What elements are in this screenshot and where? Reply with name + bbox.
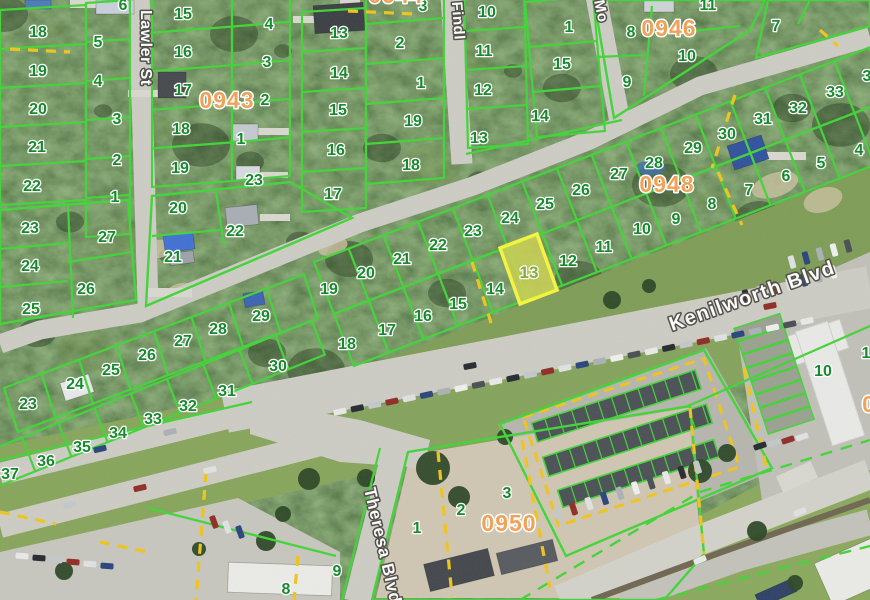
lot-number-label: 22 — [226, 223, 244, 240]
lot-number-label: 20 — [357, 265, 375, 282]
lot-number-label: 15 — [449, 296, 467, 313]
lot-number-label: 17 — [378, 322, 396, 339]
lot-number-label: 8 — [627, 24, 636, 41]
lot-number-label: 22 — [429, 237, 447, 254]
lot-number-label: 25 — [22, 301, 40, 318]
lot-number-label: 1 — [565, 19, 574, 36]
lot-number-label: 36 — [37, 453, 55, 470]
lot-number-label: 19 — [404, 113, 422, 130]
lot-number-label: 32 — [789, 100, 807, 117]
lot-number-label: 3 — [263, 54, 272, 71]
lot-number-label: 3 — [863, 68, 870, 85]
lot-number-label: 22 — [23, 178, 41, 195]
lot-number-label: 6 — [119, 0, 128, 14]
lot-number-label: 11 — [476, 43, 493, 60]
lot-number-label: 16 — [174, 44, 192, 61]
lot-number-label: 30 — [269, 358, 287, 375]
lot-number-label: 26 — [138, 347, 156, 364]
lot-number-label: 27 — [98, 229, 116, 246]
lot-number-label: 20 — [169, 200, 187, 217]
lot-number-label: 34 — [109, 425, 127, 442]
block-number-label: 0943 — [199, 87, 254, 113]
lot-number-label: 12 — [474, 82, 492, 99]
lot-number-label: 23 — [464, 223, 482, 240]
lot-number-label: 18 — [29, 24, 47, 41]
lot-number-label: 35 — [73, 439, 91, 456]
lot-number-label: 13 — [330, 25, 348, 42]
parcel-map[interactable]: 6185194203212221232724262515161718194321… — [0, 0, 870, 600]
lot-number-label: 27 — [174, 333, 192, 350]
street-name-label: Lawler St — [137, 10, 154, 86]
lot-number-label: 31 — [754, 111, 772, 128]
lot-number-label: 21 — [164, 249, 182, 266]
lot-number-label: 2 — [396, 35, 405, 52]
block-number-label: 0948 — [639, 171, 694, 197]
lot-number-label: 14 — [531, 108, 549, 125]
lot-number-label: 24 — [501, 210, 519, 227]
lot-number-label: 7 — [772, 18, 781, 35]
lot-number-label: 28 — [645, 155, 663, 172]
lot-number-label: 2 — [261, 92, 270, 109]
lot-number-label: 17 — [174, 82, 192, 99]
block-number-label: 0 — [862, 391, 870, 417]
lot-number-label: 8 — [282, 581, 291, 598]
lot-number-label: 23 — [245, 172, 263, 189]
lot-number-label: 32 — [179, 398, 197, 415]
selected-lot-number-label: 13 — [520, 263, 539, 282]
lot-number-label: 17 — [324, 186, 342, 203]
lot-number-label: 11 — [700, 0, 717, 14]
lot-number-label: 24 — [66, 376, 84, 393]
lot-number-label: 16 — [327, 142, 345, 159]
lot-number-label: 10 — [633, 221, 651, 238]
lot-number-label: 26 — [77, 281, 95, 298]
lot-number-label: 10 — [678, 48, 696, 65]
lot-number-label: 19 — [320, 281, 338, 298]
lot-number-label: 25 — [536, 196, 554, 213]
lot-number-label: 1 — [413, 520, 422, 537]
lot-number-label: 12 — [559, 253, 577, 270]
lot-number-label: 4 — [94, 73, 103, 90]
lot-number-label: 33 — [826, 84, 844, 101]
lot-number-label: 2 — [113, 152, 122, 169]
lot-number-label: 10 — [478, 4, 496, 21]
lot-number-label: 14 — [486, 281, 504, 298]
lot-number-label: 10 — [814, 363, 832, 380]
lot-number-label: 19 — [29, 63, 47, 80]
lot-number-label: 15 — [553, 56, 571, 73]
lot-number-label: 24 — [21, 258, 39, 275]
lot-number-label: 18 — [172, 121, 190, 138]
lot-number-label: 1 — [237, 131, 246, 148]
lot-number-label: 2 — [457, 502, 466, 519]
lot-number-label: 19 — [171, 160, 189, 177]
lot-number-label: 18 — [402, 157, 420, 174]
lot-number-label: 4 — [855, 142, 864, 159]
lot-number-label: 5 — [94, 34, 103, 51]
lot-number-label: 9 — [333, 563, 342, 580]
lot-number-label: 11 — [596, 239, 613, 256]
lot-number-label: 21 — [28, 139, 46, 156]
lot-number-label: 31 — [218, 383, 236, 400]
lot-number-label: 13 — [470, 130, 488, 147]
lot-number-label: 23 — [21, 220, 39, 237]
lot-number-label: 37 — [1, 466, 19, 483]
lot-number-label: 26 — [572, 182, 590, 199]
lot-number-label: 14 — [330, 65, 348, 82]
lot-number-label: 27 — [610, 166, 628, 183]
lot-number-label: 30 — [718, 126, 736, 143]
lot-number-label: 1 — [862, 345, 870, 362]
lot-number-label: 23 — [19, 396, 37, 413]
map-viewport[interactable]: 6185194203212221232724262515161718194321… — [0, 0, 870, 600]
block-number-label: 0944 — [368, 0, 423, 8]
block-number-label: 0946 — [641, 15, 696, 41]
lot-number-label: 8 — [708, 196, 717, 213]
lot-number-label: 18 — [338, 336, 356, 353]
lot-number-label: 9 — [672, 211, 681, 228]
lot-number-label: 29 — [684, 140, 702, 157]
parcel-map-container: 6185194203212221232724262515161718194321… — [0, 0, 870, 600]
lot-number-label: 15 — [174, 6, 192, 23]
lot-number-label: 21 — [393, 251, 411, 268]
lot-number-label: 3 — [503, 485, 512, 502]
street-name-label: Findl — [448, 1, 468, 40]
lot-number-label: 16 — [414, 308, 432, 325]
lot-number-label: 9 — [623, 74, 632, 91]
block-number-label: 0950 — [481, 510, 536, 536]
lot-number-label: 15 — [329, 102, 347, 119]
lot-number-label: 6 — [782, 168, 791, 185]
lot-number-label: 1 — [417, 75, 426, 92]
lot-number-label: 3 — [113, 111, 122, 128]
lot-number-label: 25 — [102, 362, 120, 379]
lot-number-label: 20 — [29, 101, 47, 118]
lot-number-label: 29 — [252, 308, 270, 325]
lot-number-label: 7 — [745, 182, 754, 199]
lot-number-label: 1 — [111, 189, 120, 206]
lot-number-label: 5 — [817, 155, 826, 172]
lot-number-label: 4 — [265, 16, 274, 33]
lot-number-label: 28 — [209, 321, 227, 338]
lot-number-label: 33 — [144, 411, 162, 428]
